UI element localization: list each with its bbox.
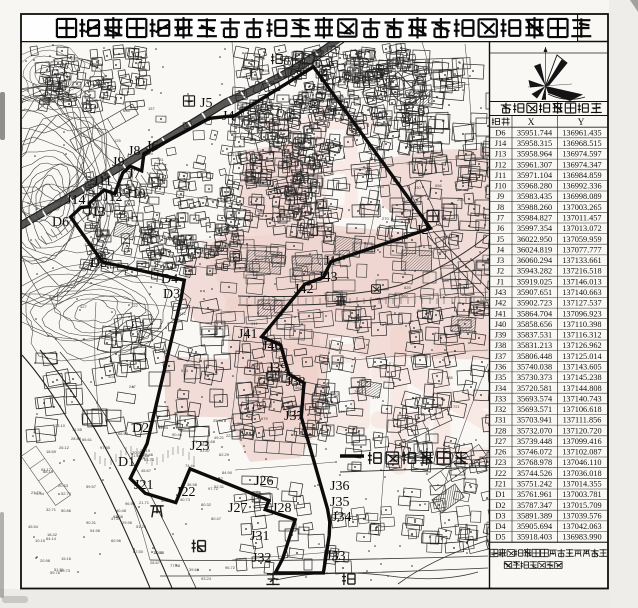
svg-text:39.69: 39.69	[189, 567, 200, 572]
svg-text:137036.018: 137036.018	[562, 469, 601, 478]
svg-text:825: 825	[404, 285, 411, 290]
svg-text:J11: J11	[93, 174, 112, 189]
svg-text:J28: J28	[495, 426, 507, 435]
svg-text:J34: J34	[495, 384, 507, 393]
svg-text:J31: J31	[495, 416, 507, 425]
svg-text:35787.347: 35787.347	[517, 501, 552, 510]
svg-text:J35: J35	[495, 373, 507, 382]
svg-text:35761.961: 35761.961	[517, 490, 552, 499]
svg-text:J26: J26	[495, 448, 507, 457]
svg-text:136992.336: 136992.336	[562, 182, 601, 191]
svg-text:D1: D1	[118, 455, 135, 470]
svg-text:35902.723: 35902.723	[517, 299, 552, 308]
svg-text:17.35: 17.35	[153, 550, 164, 555]
svg-text:J34: J34	[332, 510, 351, 525]
svg-text:137126.962: 137126.962	[562, 341, 601, 350]
svg-text:J2: J2	[497, 267, 504, 276]
svg-text:J6: J6	[497, 224, 504, 233]
svg-text:136998.089: 136998.089	[562, 192, 601, 201]
svg-text:132: 132	[232, 152, 239, 157]
svg-text:731: 731	[318, 225, 325, 230]
svg-text:384: 384	[237, 421, 244, 426]
svg-text:403: 403	[108, 374, 115, 379]
svg-text:52.79: 52.79	[61, 491, 72, 496]
svg-text:122: 122	[131, 303, 138, 308]
svg-text:J5: J5	[200, 96, 212, 111]
svg-text:J31: J31	[250, 529, 269, 544]
svg-text:35739.448: 35739.448	[517, 437, 552, 446]
svg-text:137096.923: 137096.923	[562, 309, 601, 318]
svg-text:699: 699	[258, 56, 265, 61]
svg-text:J36: J36	[495, 362, 507, 371]
svg-text:32.71: 32.71	[46, 507, 57, 512]
svg-text:J4: J4	[497, 245, 505, 254]
svg-text:732: 732	[332, 392, 339, 397]
svg-text:731: 731	[157, 157, 164, 162]
svg-text:983: 983	[291, 102, 298, 107]
svg-text:513: 513	[181, 368, 188, 373]
svg-text:721: 721	[453, 404, 460, 409]
svg-text:656: 656	[435, 183, 442, 188]
svg-text:36022.950: 36022.950	[517, 235, 552, 244]
svg-text:J21: J21	[495, 480, 507, 489]
svg-text:35744.526: 35744.526	[517, 469, 552, 478]
svg-text:679: 679	[261, 416, 268, 421]
svg-text:136974.347: 136974.347	[562, 160, 601, 169]
svg-text:80.32: 80.32	[201, 502, 212, 507]
svg-text:96.72: 96.72	[225, 565, 236, 570]
svg-text:49.21: 49.21	[214, 435, 225, 440]
svg-text:J37: J37	[495, 352, 507, 361]
svg-text:J9: J9	[497, 192, 504, 201]
svg-text:35730.373: 35730.373	[517, 373, 552, 382]
svg-text:313: 313	[327, 73, 334, 78]
svg-text:20.98: 20.98	[40, 558, 51, 563]
svg-text:J36: J36	[330, 479, 349, 494]
svg-text:50.86: 50.86	[61, 508, 72, 513]
svg-text:377: 377	[372, 395, 379, 400]
svg-text:J9: J9	[112, 155, 124, 170]
svg-text:68.53: 68.53	[118, 431, 129, 436]
svg-text:Y: Y	[578, 118, 585, 128]
svg-text:35951.744: 35951.744	[517, 128, 553, 137]
svg-text:35919.025: 35919.025	[517, 277, 552, 286]
svg-text:21.71: 21.71	[139, 500, 150, 505]
svg-text:894: 894	[262, 68, 269, 73]
svg-text:20.63: 20.63	[58, 483, 69, 488]
svg-text:35891.389: 35891.389	[517, 511, 552, 520]
svg-text:J12: J12	[103, 190, 122, 205]
svg-text:136984.859: 136984.859	[562, 171, 601, 180]
svg-text:35971.104: 35971.104	[517, 171, 553, 180]
svg-text:18.69: 18.69	[46, 449, 57, 454]
svg-text:152: 152	[186, 197, 193, 202]
svg-text:35961.307: 35961.307	[517, 160, 552, 169]
svg-text:J39: J39	[495, 331, 507, 340]
svg-text:29.96: 29.96	[122, 520, 133, 525]
svg-text:35943.282: 35943.282	[517, 267, 552, 276]
svg-text:J41: J41	[495, 309, 507, 318]
svg-text:35831.213: 35831.213	[517, 341, 552, 350]
svg-text:826: 826	[395, 60, 402, 65]
svg-text:J40: J40	[262, 339, 281, 354]
svg-text:J10: J10	[495, 182, 507, 191]
svg-text:157: 157	[148, 106, 155, 111]
svg-text:136983.990: 136983.990	[562, 533, 601, 542]
svg-text:D6: D6	[495, 128, 505, 137]
svg-text:137110.398: 137110.398	[562, 320, 601, 329]
svg-text:D4: D4	[495, 522, 506, 531]
svg-text:247: 247	[129, 384, 136, 389]
svg-text:J1: J1	[324, 254, 336, 269]
svg-text:90.46: 90.46	[172, 432, 183, 437]
svg-text:J23: J23	[190, 439, 209, 454]
svg-text:J12: J12	[495, 160, 507, 169]
svg-text:35997.354: 35997.354	[517, 224, 553, 233]
svg-text:J43: J43	[318, 270, 337, 285]
svg-text:J11: J11	[495, 171, 506, 180]
svg-text:25.36: 25.36	[213, 418, 224, 423]
svg-text:J27: J27	[495, 437, 507, 446]
svg-text:270: 270	[382, 216, 389, 221]
svg-text:223: 223	[226, 433, 233, 438]
svg-text:767: 767	[301, 89, 308, 94]
svg-text:137146.013: 137146.013	[562, 277, 601, 286]
svg-text:93.24: 93.24	[201, 576, 212, 581]
svg-text:J4: J4	[222, 109, 234, 124]
svg-text:35693.574: 35693.574	[517, 394, 553, 403]
svg-text:993: 993	[404, 208, 411, 213]
svg-text:35983.435: 35983.435	[517, 192, 552, 201]
svg-text:35858.656: 35858.656	[517, 320, 552, 329]
svg-text:350: 350	[424, 66, 431, 71]
svg-text:137003.265: 137003.265	[562, 203, 601, 212]
svg-text:35837.531: 35837.531	[517, 331, 552, 340]
svg-text:62.29: 62.29	[219, 452, 230, 457]
svg-text:137140.663: 137140.663	[562, 288, 601, 297]
svg-text:615: 615	[130, 345, 137, 350]
svg-text:137116.312: 137116.312	[562, 331, 601, 340]
svg-text:137015.709: 137015.709	[562, 501, 601, 510]
svg-text:35703.941: 35703.941	[517, 416, 552, 425]
svg-text:35864.704: 35864.704	[517, 309, 553, 318]
svg-text:253: 253	[457, 197, 464, 202]
svg-text:59.57: 59.57	[86, 484, 97, 489]
svg-text:137099.416: 137099.416	[562, 437, 601, 446]
svg-text:28.67: 28.67	[150, 560, 161, 565]
svg-text:77.88: 77.88	[170, 563, 181, 568]
svg-text:137106.618: 137106.618	[562, 405, 601, 414]
svg-text:66.61: 66.61	[82, 437, 93, 442]
svg-text:D6: D6	[52, 215, 69, 230]
svg-text:J40: J40	[495, 320, 507, 329]
svg-text:769: 769	[406, 161, 413, 166]
svg-text:35907.651: 35907.651	[517, 288, 552, 297]
svg-text:J32: J32	[252, 551, 271, 566]
svg-text:125: 125	[114, 138, 121, 143]
svg-text:688: 688	[257, 208, 264, 213]
svg-text:J38: J38	[495, 341, 507, 350]
svg-text:88.13: 88.13	[43, 469, 54, 474]
svg-text:J22: J22	[176, 485, 195, 500]
svg-text:23.10: 23.10	[55, 423, 66, 428]
svg-text:137127.537: 137127.537	[562, 299, 601, 308]
svg-text:64.14: 64.14	[46, 536, 57, 541]
svg-text:D2: D2	[132, 421, 149, 436]
svg-text:45.54: 45.54	[28, 524, 39, 529]
svg-text:35740.038: 35740.038	[517, 362, 552, 371]
svg-text:35918.403: 35918.403	[517, 533, 552, 542]
svg-text:137003.781: 137003.781	[562, 490, 601, 499]
svg-text:829: 829	[237, 102, 244, 107]
svg-text:761: 761	[354, 389, 361, 394]
svg-text:51.51: 51.51	[54, 567, 65, 572]
svg-text:137120.720: 137120.720	[562, 426, 601, 435]
svg-text:634: 634	[123, 108, 130, 113]
svg-text:J38: J38	[286, 375, 305, 390]
svg-text:137059.959: 137059.959	[562, 235, 601, 244]
svg-text:769: 769	[168, 253, 175, 258]
svg-text:137013.072: 137013.072	[562, 224, 601, 233]
svg-text:90.31: 90.31	[86, 520, 97, 525]
svg-text:J14: J14	[495, 139, 507, 148]
svg-text:489: 489	[278, 208, 285, 213]
svg-text:D4: D4	[161, 272, 178, 287]
svg-text:40.48: 40.48	[116, 508, 127, 513]
svg-text:36024.819: 36024.819	[517, 245, 552, 254]
svg-text:75.94: 75.94	[34, 491, 45, 496]
svg-text:J22: J22	[495, 469, 507, 478]
svg-text:783: 783	[351, 67, 358, 72]
svg-text:60.96: 60.96	[111, 538, 122, 543]
svg-text:J26: J26	[254, 474, 273, 489]
svg-text:J7: J7	[497, 214, 504, 223]
svg-text:94.96: 94.96	[90, 528, 101, 533]
svg-text:388: 388	[446, 375, 453, 380]
svg-text:103: 103	[250, 363, 257, 368]
svg-text:35988.260: 35988.260	[517, 203, 552, 212]
svg-text:J10: J10	[126, 187, 145, 202]
svg-text:137143.605: 137143.605	[562, 362, 601, 371]
svg-text:J42: J42	[495, 299, 507, 308]
svg-text:J13: J13	[495, 150, 507, 159]
svg-text:35905.694: 35905.694	[517, 522, 553, 531]
svg-text:J6: J6	[146, 139, 158, 154]
svg-text:371: 371	[150, 257, 157, 262]
svg-text:J14: J14	[66, 193, 85, 208]
svg-text:J42: J42	[294, 282, 313, 297]
svg-text:J37: J37	[284, 409, 303, 424]
svg-text:35720.581: 35720.581	[517, 384, 552, 393]
svg-text:84.90: 84.90	[222, 470, 233, 475]
svg-text:D2: D2	[495, 501, 505, 510]
svg-text:35746.072: 35746.072	[517, 448, 552, 457]
svg-text:36060.294: 36060.294	[517, 256, 553, 265]
svg-text:X: X	[528, 118, 535, 128]
svg-text:35768.978: 35768.978	[517, 458, 552, 467]
svg-text:35958.315: 35958.315	[517, 139, 552, 148]
svg-text:35984.827: 35984.827	[517, 214, 552, 223]
svg-text:J28: J28	[272, 501, 291, 516]
svg-text:912: 912	[179, 311, 186, 316]
svg-text:J3: J3	[497, 256, 504, 265]
svg-text:136968.515: 136968.515	[562, 139, 601, 148]
svg-text:35968.280: 35968.280	[517, 182, 552, 191]
svg-text:330: 330	[414, 185, 421, 190]
svg-text:J8: J8	[497, 203, 504, 212]
svg-text:J7: J7	[128, 167, 140, 182]
svg-text:137140.743: 137140.743	[562, 394, 601, 403]
svg-text:J32: J32	[495, 405, 507, 414]
svg-text:D5: D5	[90, 256, 107, 271]
svg-text:427: 427	[80, 304, 87, 309]
svg-text:J13: J13	[86, 205, 105, 220]
svg-text:J21: J21	[134, 478, 153, 493]
svg-text:35806.448: 35806.448	[517, 352, 552, 361]
svg-text:J41: J41	[238, 327, 257, 342]
svg-text:J39: J39	[268, 361, 287, 376]
svg-text:137014.355: 137014.355	[562, 480, 601, 489]
svg-text:137125.014: 137125.014	[562, 352, 602, 361]
svg-text:45.67: 45.67	[141, 468, 152, 473]
svg-text:J23: J23	[495, 458, 507, 467]
svg-text:137039.576: 137039.576	[562, 511, 601, 520]
svg-text:408: 408	[267, 120, 274, 125]
svg-text:137102.087: 137102.087	[562, 448, 601, 457]
svg-text:J33: J33	[495, 394, 507, 403]
svg-text:35751.242: 35751.242	[517, 480, 552, 489]
svg-text:80.47: 80.47	[211, 516, 222, 521]
svg-text:144: 144	[338, 409, 345, 414]
svg-text:941: 941	[251, 321, 258, 326]
svg-text:J8: J8	[128, 144, 140, 159]
svg-text:D3: D3	[163, 287, 180, 302]
svg-text:137077.777: 137077.777	[562, 245, 601, 254]
svg-text:137216.518: 137216.518	[562, 267, 601, 276]
svg-text:D1: D1	[495, 490, 505, 499]
svg-text:137046.110: 137046.110	[562, 458, 601, 467]
svg-text:10.15: 10.15	[35, 538, 46, 543]
svg-text:512: 512	[455, 331, 462, 336]
svg-text:137144.808: 137144.808	[562, 384, 601, 393]
svg-text:445: 445	[377, 184, 384, 189]
svg-text:137145.238: 137145.238	[562, 373, 601, 382]
svg-text:J2: J2	[416, 223, 428, 238]
svg-text:26.12: 26.12	[59, 445, 70, 450]
svg-text:D3: D3	[495, 511, 505, 520]
svg-text:J43: J43	[495, 288, 507, 297]
svg-text:15.16: 15.16	[61, 556, 72, 561]
svg-text:136961.435: 136961.435	[562, 128, 601, 137]
svg-text:J5: J5	[497, 235, 504, 244]
svg-text:J35: J35	[330, 495, 349, 510]
svg-text:137133.661: 137133.661	[562, 256, 601, 265]
svg-text:J27: J27	[228, 501, 247, 516]
svg-text:137111.856: 137111.856	[563, 416, 602, 425]
svg-text:35693.571: 35693.571	[517, 405, 552, 414]
svg-text:D5: D5	[495, 533, 505, 542]
svg-text:383: 383	[442, 278, 449, 283]
svg-text:137042.063: 137042.063	[562, 522, 601, 531]
svg-text:97.72: 97.72	[208, 486, 219, 491]
svg-text:35732.070: 35732.070	[517, 426, 552, 435]
svg-text:109: 109	[252, 389, 259, 394]
svg-text:564: 564	[158, 424, 165, 429]
svg-text:35958.964: 35958.964	[517, 150, 553, 159]
svg-text:J33: J33	[326, 549, 345, 564]
svg-text:J1: J1	[497, 277, 504, 286]
svg-text:136974.597: 136974.597	[562, 150, 601, 159]
svg-text:137011.457: 137011.457	[562, 214, 601, 223]
